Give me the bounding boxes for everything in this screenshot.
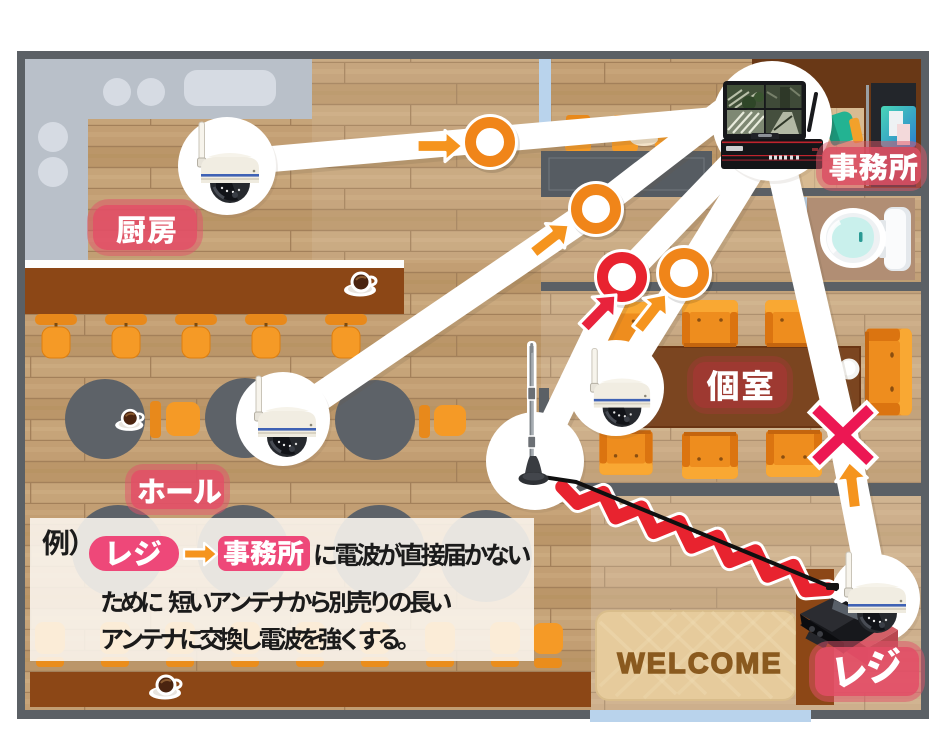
svg-text:WELCOME: WELCOME <box>617 648 782 680</box>
